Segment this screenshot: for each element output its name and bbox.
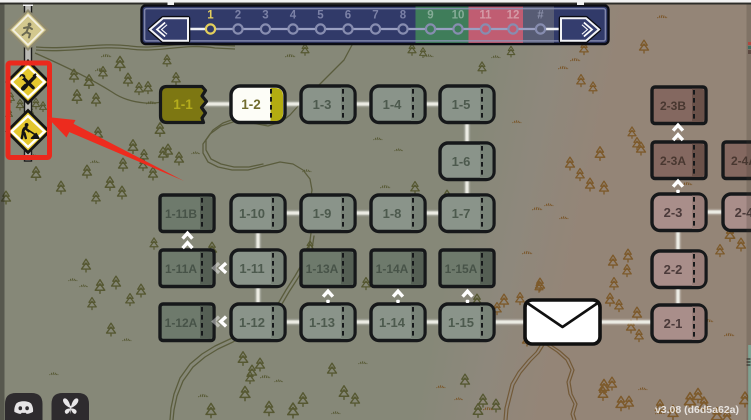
svg-text:1-6: 1-6 [452, 154, 471, 169]
svg-text:1-10: 1-10 [239, 206, 265, 221]
svg-text:1-9: 1-9 [313, 206, 332, 221]
svg-text:#: # [537, 10, 544, 22]
svg-text:4: 4 [290, 10, 297, 22]
svg-text:2: 2 [235, 10, 241, 22]
svg-text:7: 7 [372, 10, 378, 22]
svg-text:1-11B: 1-11B [165, 207, 197, 221]
svg-text:1-1: 1-1 [173, 97, 193, 112]
svg-text:1-3: 1-3 [313, 97, 332, 112]
svg-text:1-2: 1-2 [241, 97, 261, 112]
svg-text:1: 1 [207, 10, 214, 22]
svg-text:1-13A: 1-13A [306, 262, 339, 276]
svg-text:1-4: 1-4 [383, 97, 403, 112]
svg-text:2-2: 2-2 [664, 262, 683, 277]
svg-text:9: 9 [427, 10, 433, 22]
svg-text:1-7: 1-7 [452, 206, 471, 221]
svg-text:1-12: 1-12 [239, 315, 265, 330]
svg-text:3: 3 [262, 10, 268, 22]
svg-text:2-3B: 2-3B [660, 99, 686, 113]
svg-text:2-3: 2-3 [664, 205, 683, 220]
svg-text:8: 8 [400, 10, 407, 22]
svg-text:1-11A: 1-11A [165, 262, 197, 276]
svg-text:10: 10 [452, 10, 465, 22]
svg-text:1-15: 1-15 [448, 315, 474, 330]
svg-text:1-14: 1-14 [379, 315, 406, 330]
svg-text:1-8: 1-8 [383, 206, 402, 221]
svg-text:1-13: 1-13 [309, 315, 335, 330]
svg-text:11: 11 [479, 10, 492, 22]
svg-text:1-12A: 1-12A [165, 316, 198, 330]
svg-text:12: 12 [507, 10, 520, 22]
svg-text:1-14A: 1-14A [376, 262, 409, 276]
svg-text:2-3A: 2-3A [660, 154, 686, 168]
svg-text:2-1: 2-1 [664, 316, 683, 331]
svg-text:1-11: 1-11 [239, 261, 264, 276]
svg-text:1-5: 1-5 [452, 97, 471, 112]
svg-text:v3.08 (d6d5a62a): v3.08 (d6d5a62a) [655, 404, 739, 416]
svg-text:1-15A: 1-15A [445, 262, 478, 276]
svg-text:5: 5 [317, 10, 324, 22]
svg-text:6: 6 [345, 10, 351, 22]
